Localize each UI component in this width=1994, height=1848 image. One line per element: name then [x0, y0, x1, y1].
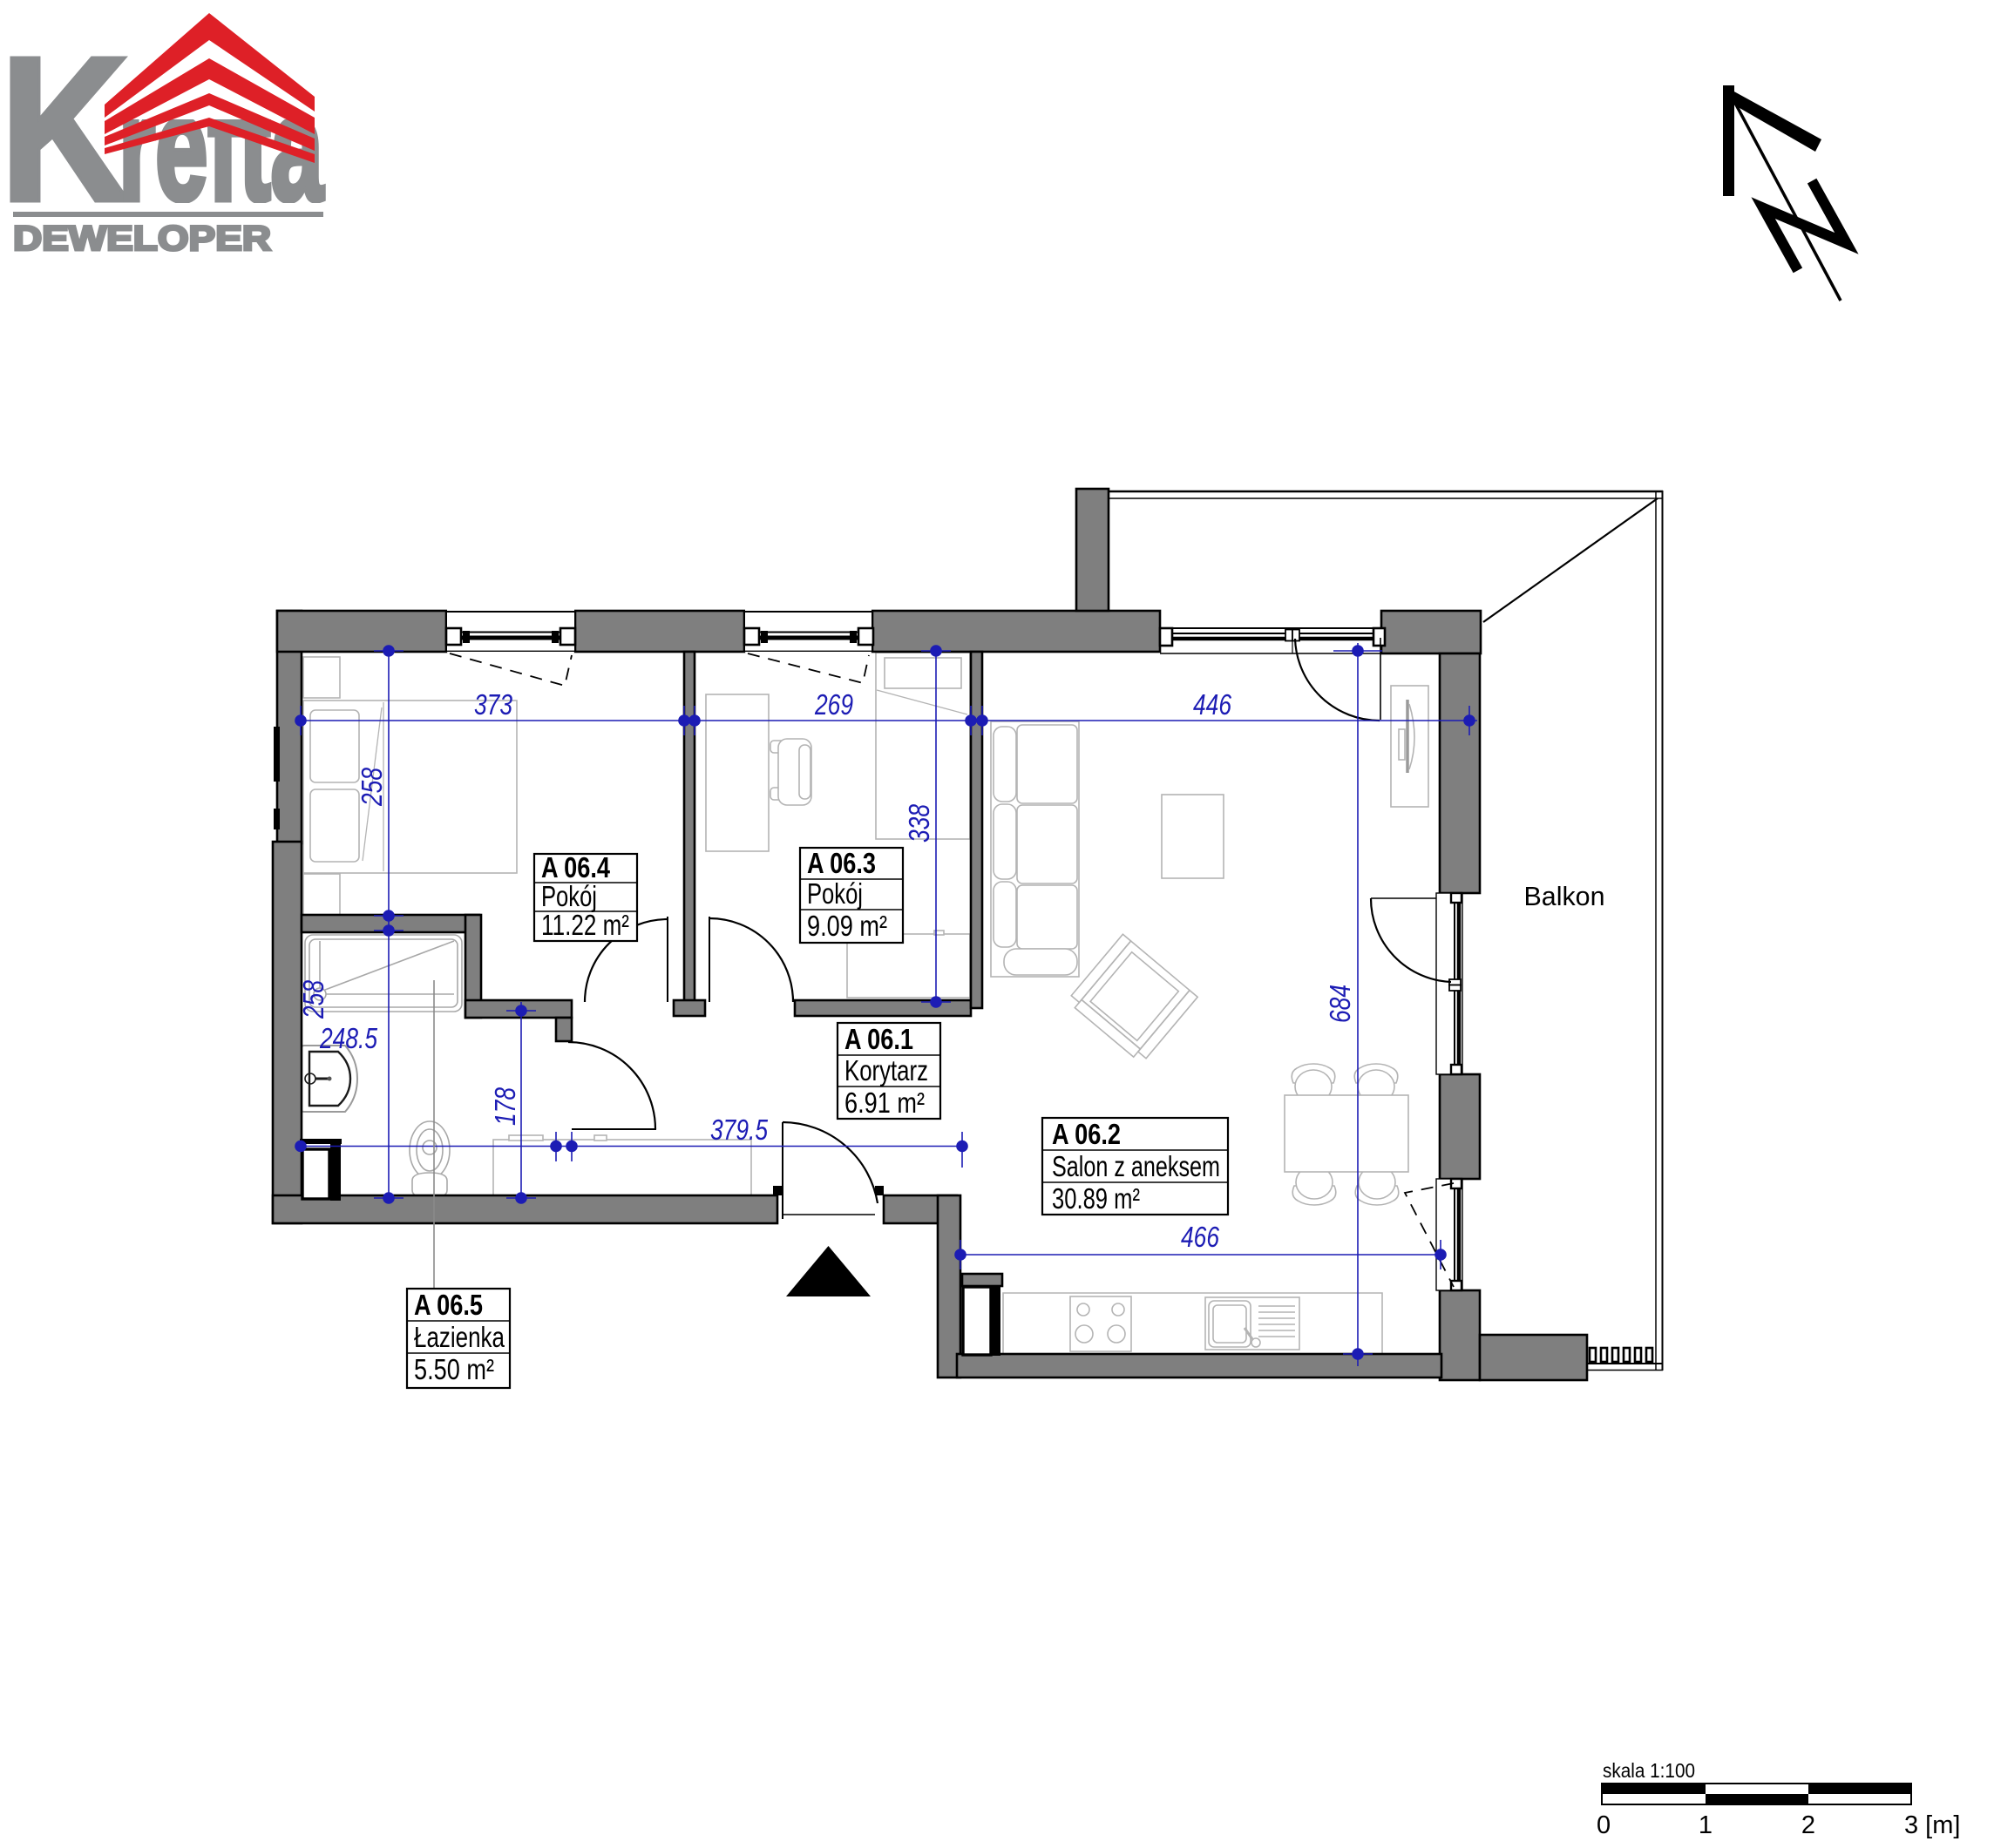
svg-text:A 06.2: A 06.2: [1052, 1118, 1121, 1150]
svg-text:Korytarz: Korytarz: [844, 1054, 928, 1086]
svg-text:248.5: 248.5: [319, 1022, 377, 1054]
svg-text:30.89 m²: 30.89 m²: [1052, 1182, 1140, 1215]
svg-text:684: 684: [1324, 985, 1356, 1023]
svg-text:258: 258: [356, 767, 388, 806]
svg-text:Pokój: Pokój: [807, 877, 863, 910]
svg-text:258: 258: [297, 979, 329, 1019]
svg-text:A 06.4: A 06.4: [541, 851, 611, 883]
svg-text:A 06.3: A 06.3: [807, 847, 876, 879]
svg-text:379.5: 379.5: [710, 1114, 769, 1146]
svg-text:466: 466: [1181, 1221, 1220, 1253]
svg-text:338: 338: [903, 803, 935, 843]
svg-text:5.50 m²: 5.50 m²: [414, 1353, 494, 1385]
svg-text:11.22 m²: 11.22 m²: [541, 909, 629, 941]
svg-text:0: 0: [1597, 1811, 1611, 1839]
svg-text:9.09 m²: 9.09 m²: [807, 910, 887, 942]
svg-text:Salon z aneksem: Salon z aneksem: [1052, 1150, 1220, 1182]
svg-text:1: 1: [1699, 1811, 1713, 1839]
svg-text:Łazienka: Łazienka: [414, 1321, 505, 1353]
svg-text:446: 446: [1193, 688, 1232, 721]
svg-text:2: 2: [1801, 1811, 1815, 1839]
svg-text:A 06.1: A 06.1: [844, 1023, 913, 1055]
svg-text:178: 178: [489, 1086, 521, 1126]
svg-text:269: 269: [814, 688, 853, 721]
svg-text:373: 373: [474, 688, 513, 721]
svg-text:3 [m]: 3 [m]: [1904, 1811, 1960, 1839]
svg-text:Pokój: Pokój: [541, 880, 597, 912]
svg-text:skala 1:100: skala 1:100: [1603, 1759, 1695, 1782]
svg-text:Balkon: Balkon: [1524, 881, 1605, 911]
svg-text:6.91 m²: 6.91 m²: [844, 1086, 925, 1119]
svg-text:DEWELOPER: DEWELOPER: [13, 220, 271, 258]
svg-text:A 06.5: A 06.5: [414, 1289, 483, 1321]
